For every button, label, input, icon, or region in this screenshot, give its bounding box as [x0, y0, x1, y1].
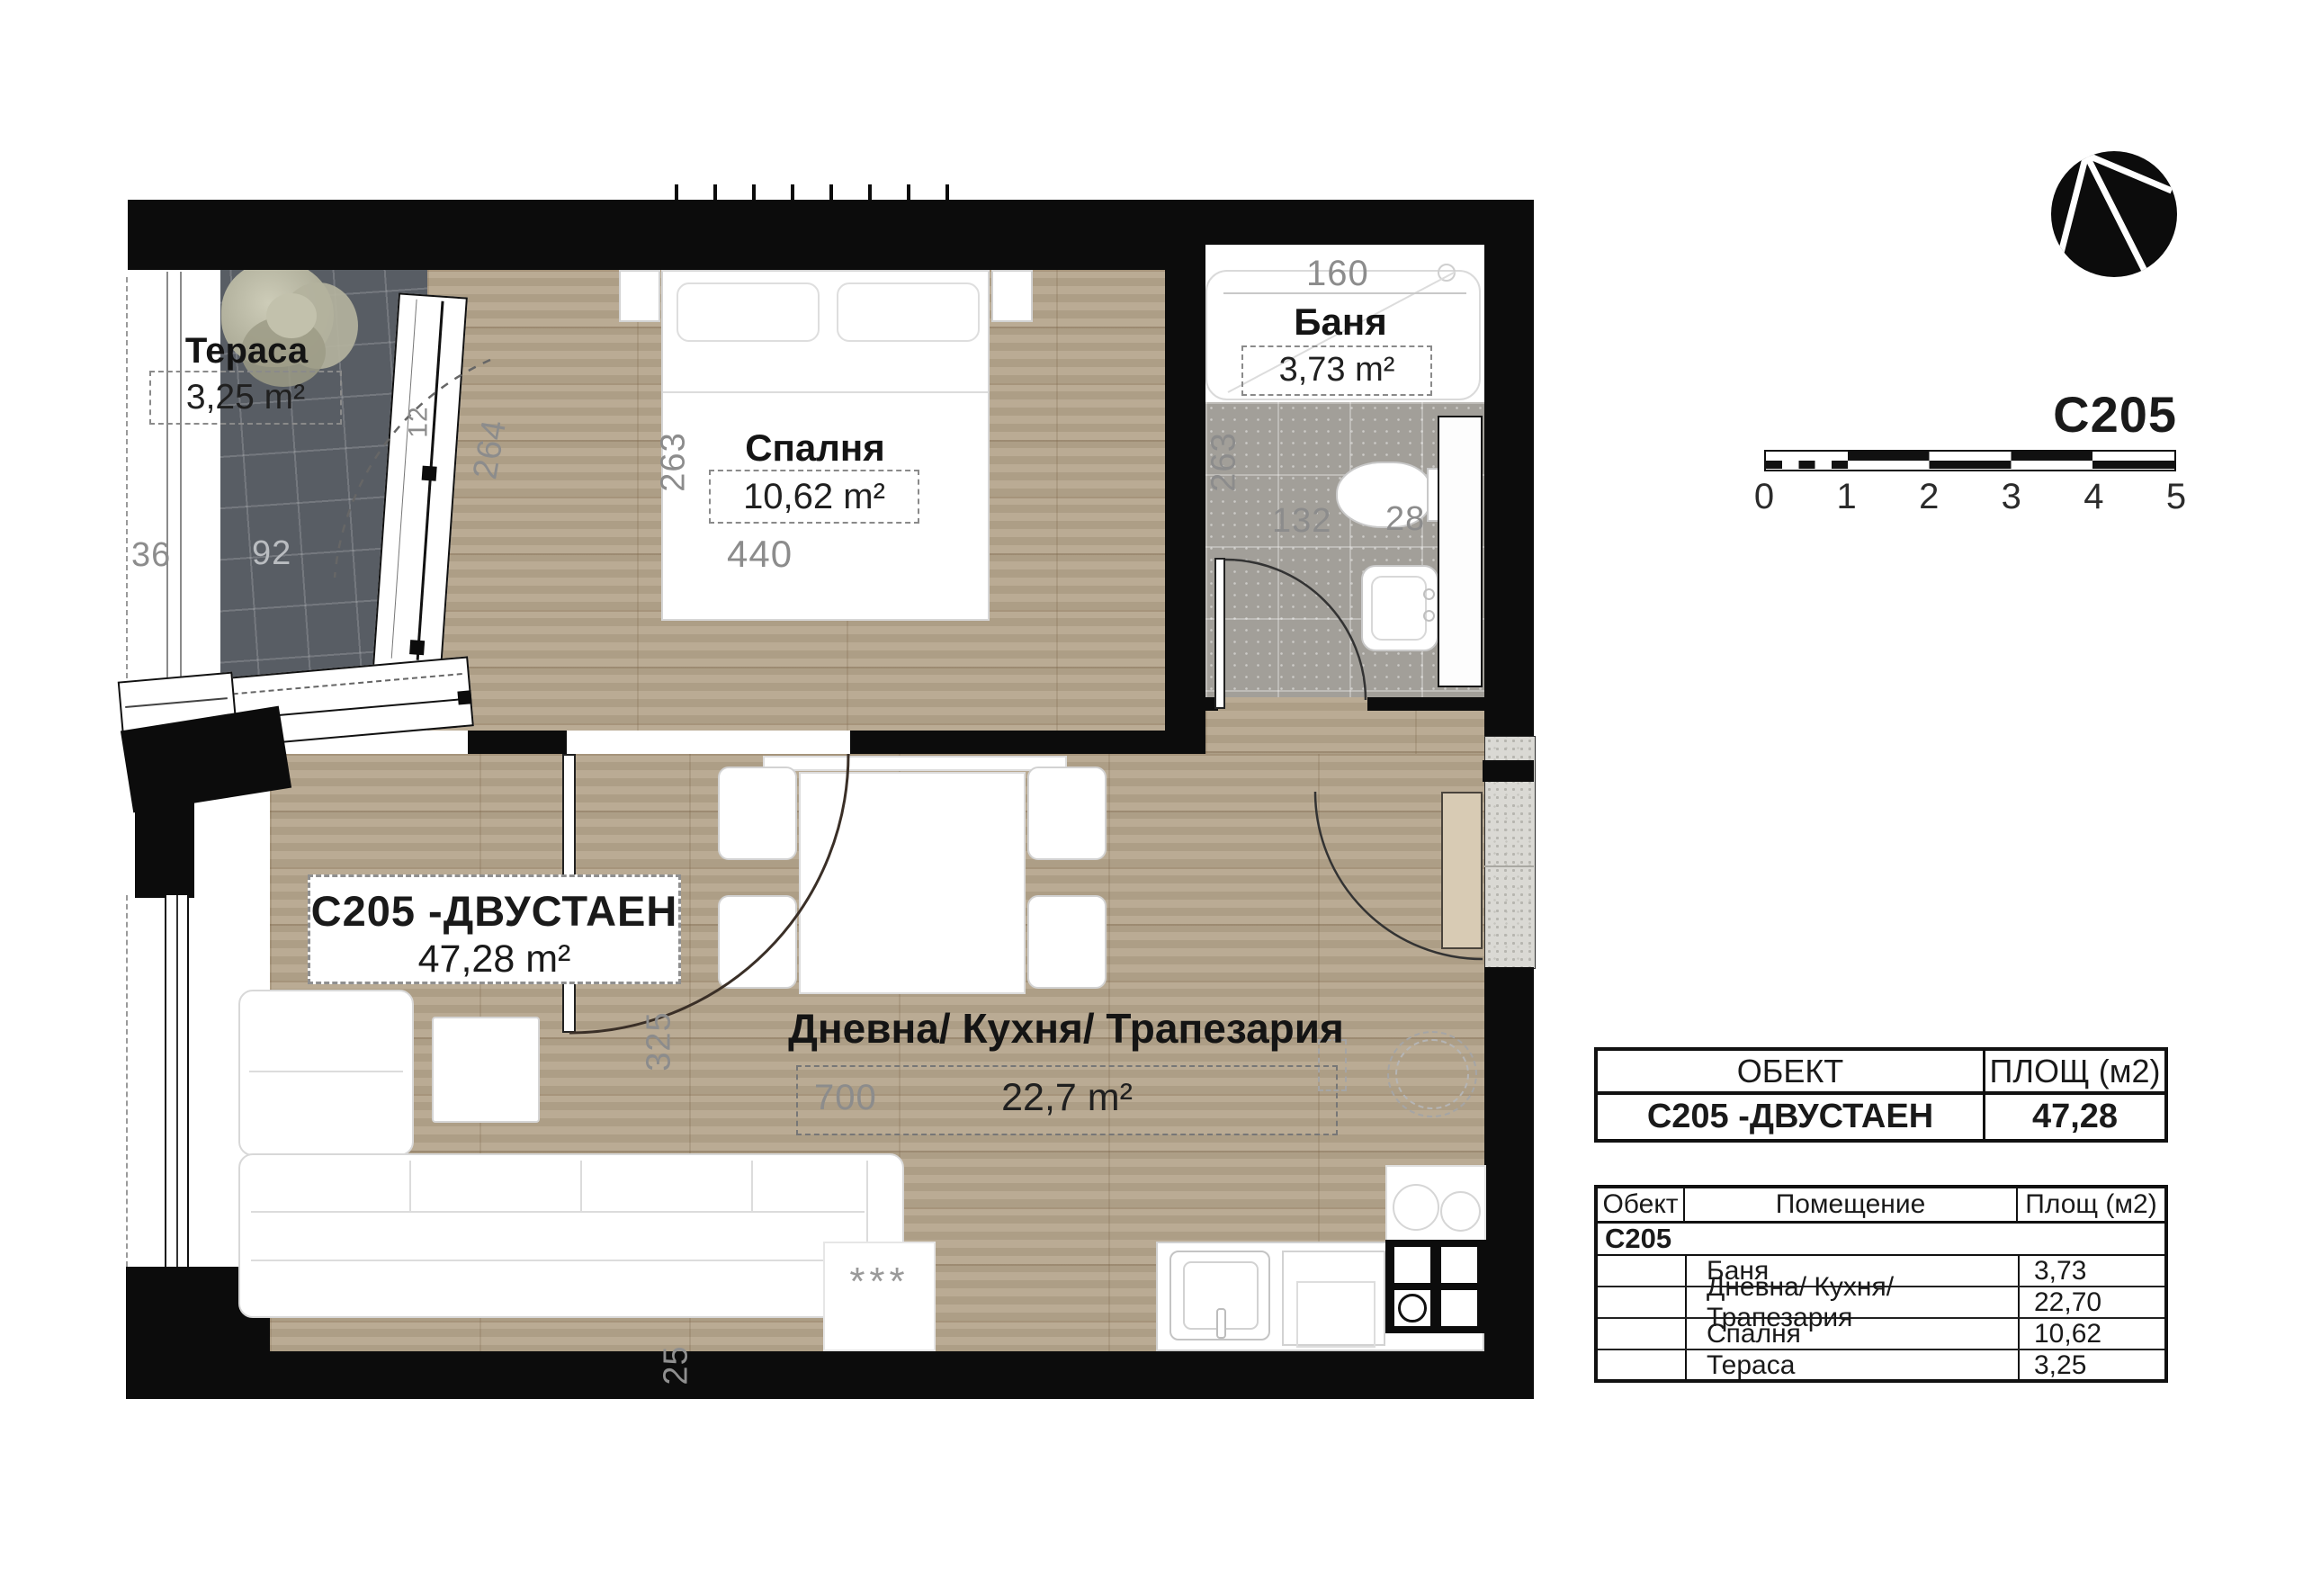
dim-bath-fix1: 132 — [1272, 502, 1331, 541]
table-row: Спалня 10,62 — [1598, 1319, 2164, 1350]
breakdown-table: Обект Помещение Площ (м2) C205 Баня 3,73… — [1594, 1185, 2168, 1383]
kitchen-sink — [1169, 1251, 1270, 1340]
pillow — [837, 282, 980, 342]
shower-drain — [1438, 264, 1456, 282]
summary-col-area: ПЛОЩ (м2) — [1985, 1051, 2164, 1091]
facade-dashed-line-lower — [126, 895, 128, 1267]
wall-bedroom-living-a — [468, 731, 567, 754]
scale-bar: 0 1 2 3 4 5 — [1764, 450, 2176, 531]
wall-bedroom-living-b — [850, 731, 1165, 754]
scale-tick-2: 2 — [1919, 477, 1939, 517]
door-hinge-block — [422, 466, 437, 481]
wall-right-upper — [1484, 245, 1534, 736]
unit-area: 47,28 m² — [310, 937, 678, 982]
dim-partition: 12 — [404, 406, 435, 437]
nightstand-left — [619, 270, 660, 322]
bedroom-area: 10,62 m² — [711, 477, 918, 517]
scale-tick-1: 1 — [1836, 477, 1856, 517]
bedroom-label: Спалня — [711, 426, 919, 470]
wall-bottom — [270, 1351, 1534, 1399]
scale-tick-4: 4 — [2083, 477, 2103, 517]
table-row: Дневна/ Кухня/ Трапезария 22,70 — [1598, 1287, 2164, 1319]
bedroom-area-box: 10,62 m² — [709, 470, 919, 524]
terrace-area-box: 3,25 m² — [149, 371, 342, 425]
living-label: Дневна/ Кухня/ Трапезария — [778, 1004, 1354, 1053]
granite-joint — [1484, 865, 1534, 867]
wall-bedroom-bath — [1165, 270, 1205, 754]
scale-tick-5: 5 — [2166, 477, 2186, 517]
living-area-box: 700 22,7 m² — [796, 1065, 1338, 1135]
rug-marks: *** — [849, 1260, 909, 1305]
unit-label-box: C205 -ДВУСТАЕН 47,28 m² — [308, 874, 681, 984]
row-room: Тераса — [1687, 1350, 2020, 1380]
stove — [1385, 1240, 1486, 1333]
pillow — [677, 282, 820, 342]
dim-terrace-w: 36 — [131, 536, 171, 575]
sofa-seat — [238, 1153, 904, 1318]
dim-bedroom-w: 440 — [727, 533, 793, 576]
row-area: 3,73 — [2020, 1256, 2164, 1286]
scale-bar-graphic — [1764, 450, 2176, 471]
dim-bath-w: 160 — [1306, 254, 1369, 294]
dining-chair — [1027, 895, 1107, 989]
table-row: Тераса 3,25 — [1598, 1350, 2164, 1380]
bathroom-label: Баня — [1286, 300, 1394, 344]
burner-circle — [1393, 1184, 1439, 1231]
row-room: Спалня — [1687, 1319, 2020, 1349]
breakdown-group: C205 — [1598, 1223, 1671, 1255]
dining-table — [799, 772, 1026, 994]
row-room: Дневна/ Кухня/ Трапезария — [1687, 1287, 2020, 1317]
dim-bath-h: 263 — [1205, 432, 1244, 491]
dim-wall-t: 25 — [658, 1345, 696, 1385]
dining-console — [763, 756, 1067, 771]
breakdown-col-room: Помещение — [1685, 1188, 2018, 1221]
facade-dashed-line — [126, 277, 128, 687]
dim-living-h: 325 — [641, 1011, 679, 1071]
dim-bedroom-h: 263 — [655, 432, 694, 491]
terrace-label: Тераса — [151, 331, 342, 372]
bathroom-area-box: 3,73 m² — [1241, 345, 1432, 396]
burner-circle — [1440, 1191, 1481, 1232]
entry-wall-stub — [1483, 760, 1534, 782]
breakdown-col-object: Обект — [1598, 1188, 1685, 1221]
unit-code-title: C205 — [1934, 385, 2177, 444]
row-area: 3,25 — [2020, 1350, 2164, 1380]
summary-row-area: 47,28 — [1985, 1095, 2164, 1139]
living-window — [165, 895, 189, 1267]
logo — [2051, 150, 2177, 278]
floor-plan: *** Тераса 3,25 m² Спалня — [0, 0, 1596, 1596]
living-area: 22,7 m² — [798, 1076, 1336, 1120]
kitchen-cabinet — [1282, 1251, 1385, 1346]
rug: *** — [823, 1242, 936, 1351]
nightstand-right — [991, 270, 1033, 322]
bath-shaft — [1438, 416, 1483, 687]
dining-chair — [718, 895, 797, 989]
wall-top-bath — [1205, 200, 1534, 245]
breakdown-group-row: C205 — [1598, 1224, 2164, 1256]
bath-sink — [1361, 565, 1438, 651]
summary-row-object: C205 -ДВУСТАЕН — [1598, 1095, 1985, 1139]
dim-terrace-l: 92 — [252, 534, 291, 573]
wall-left-mid — [135, 776, 194, 898]
wall-bath-bottom-b — [1367, 697, 1484, 711]
terrace-area: 3,25 m² — [151, 378, 340, 417]
dining-chair — [1027, 767, 1107, 860]
row-area: 22,70 — [2020, 1287, 2164, 1317]
wall-top — [128, 200, 1205, 270]
sofa-chaise — [238, 990, 414, 1156]
bathroom-area: 3,73 m² — [1243, 351, 1430, 390]
coffee-table — [432, 1017, 540, 1123]
summary-table: ОБЕКТ ПЛОЩ (м2) C205 -ДВУСТАЕН 47,28 — [1594, 1047, 2168, 1143]
breakdown-col-area: Площ (м2) — [2018, 1188, 2164, 1221]
summary-col-object: ОБЕКТ — [1598, 1051, 1985, 1091]
dim-bath-fix2: 28 — [1385, 500, 1425, 539]
entry-door-leaf — [1441, 792, 1483, 949]
row-area: 10,62 — [2020, 1319, 2164, 1349]
scale-tick-0: 0 — [1754, 477, 1774, 517]
door-hinge-block — [409, 640, 425, 655]
unit-title: C205 -ДВУСТАЕН — [310, 886, 678, 936]
scale-tick-3: 3 — [2002, 477, 2021, 517]
side-table-dashed — [1387, 1031, 1477, 1117]
bathroom-door-leaf — [1214, 558, 1225, 709]
wall-right-lower — [1484, 967, 1534, 1399]
dining-chair — [718, 767, 797, 860]
